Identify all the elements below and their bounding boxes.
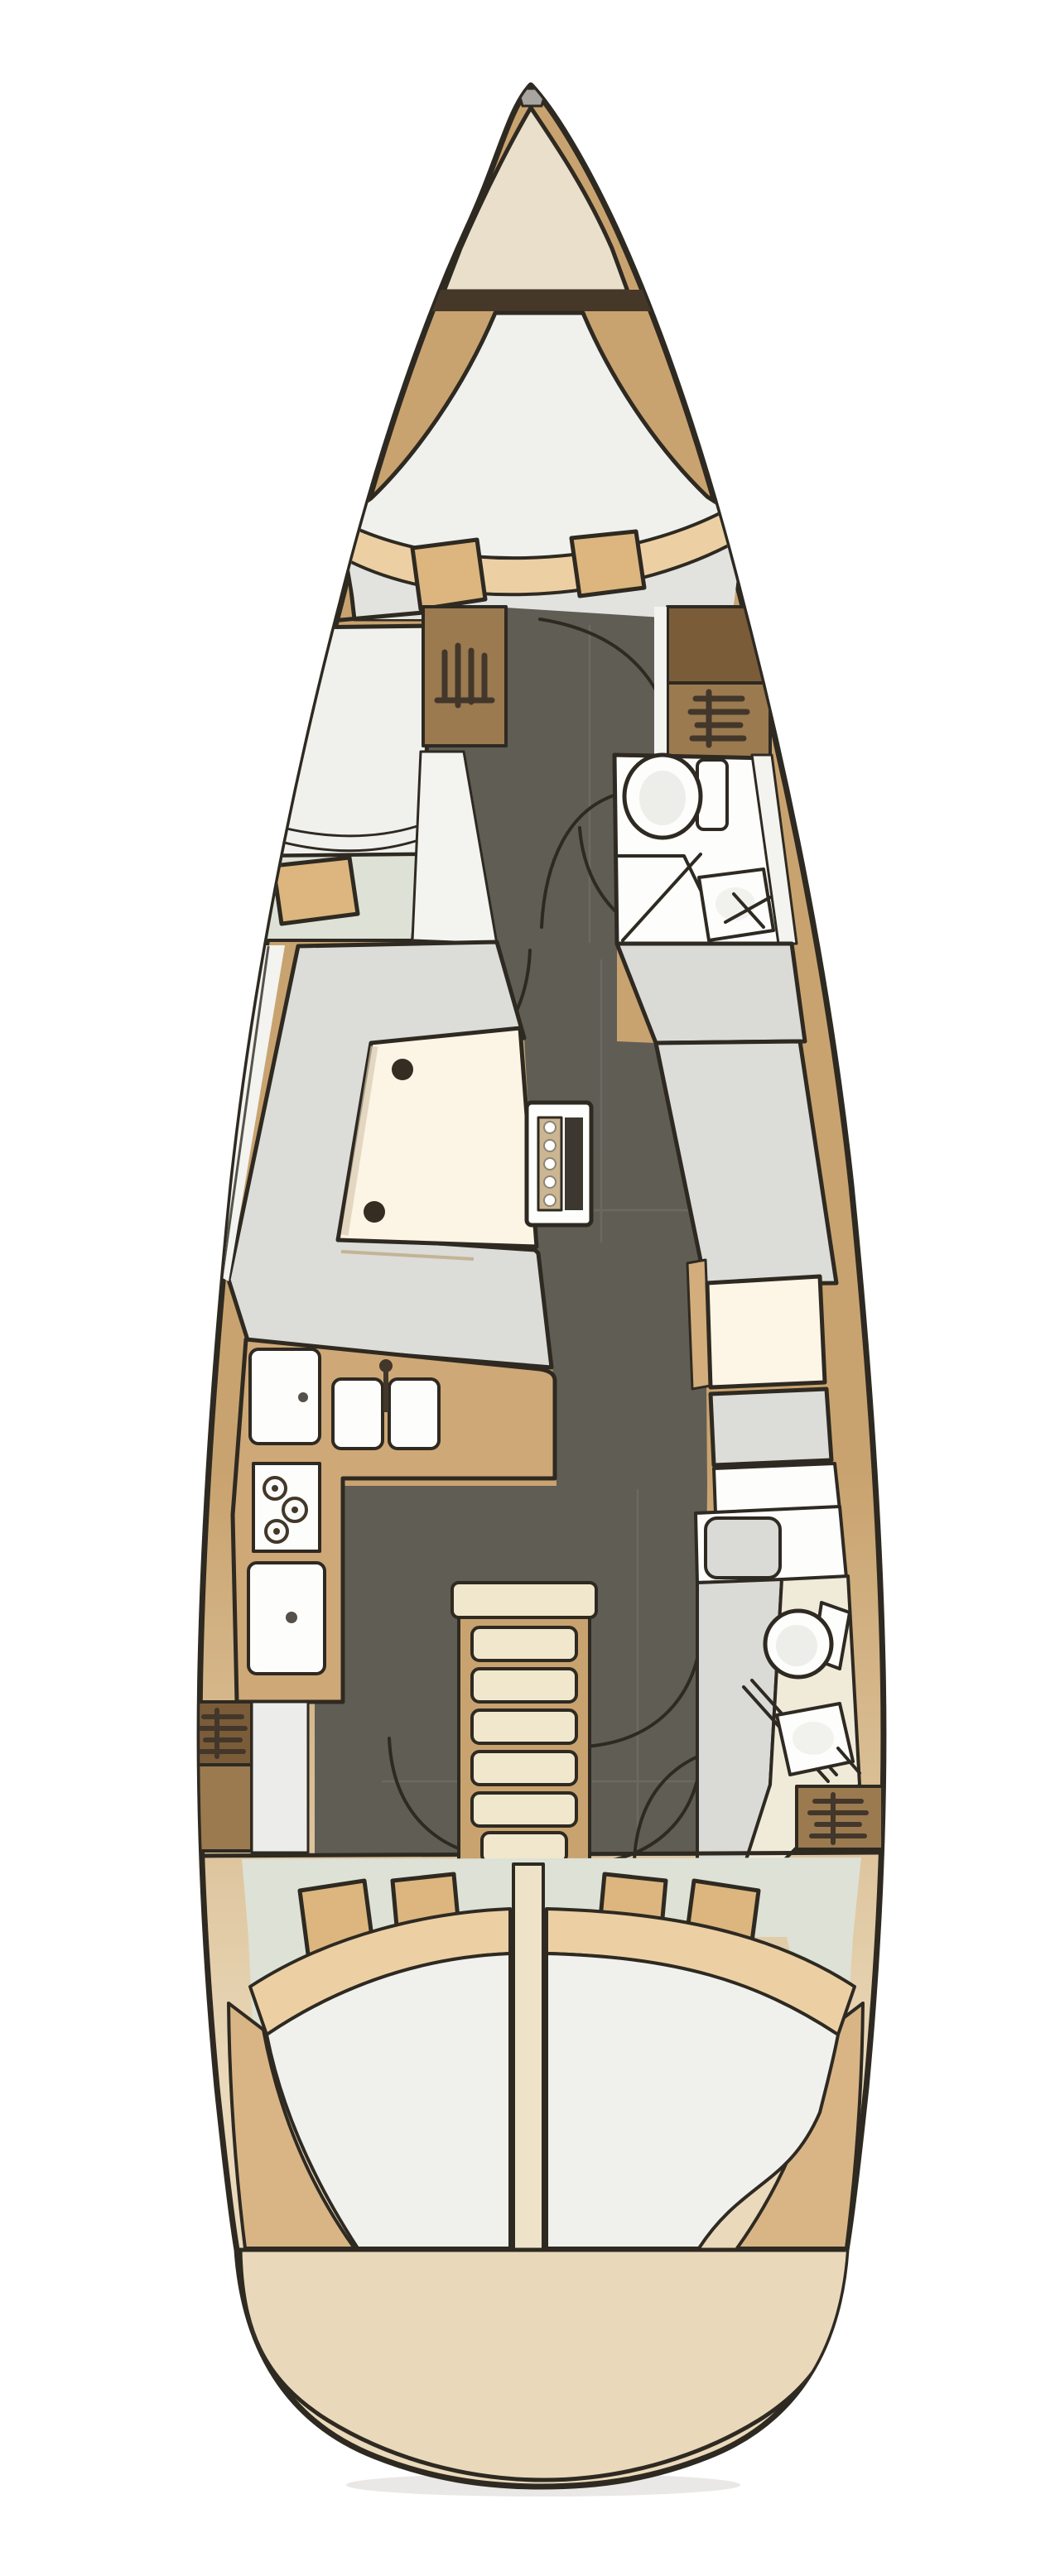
companionway (452, 1583, 596, 1871)
pillow (273, 858, 358, 924)
folding-table (527, 1103, 591, 1225)
wardrobe-forward-port (423, 607, 506, 746)
yacht-floorplan-page (0, 0, 1060, 2576)
aft-locker-starboard (797, 1786, 883, 1849)
companionway-tread (482, 1833, 566, 1862)
pillow (571, 531, 644, 596)
companionway-tread (472, 1627, 576, 1660)
chart-table (707, 1276, 825, 1387)
hanging-locker (797, 1786, 883, 1849)
nav-counter (714, 1463, 840, 1513)
folding-table-leaf (565, 1117, 583, 1210)
basin-bowl (793, 1722, 834, 1755)
faucet-icon (379, 1359, 393, 1372)
companionway-sill (452, 1583, 596, 1617)
pillow (412, 540, 485, 609)
toilet-bowl (776, 1625, 817, 1666)
locker-side-panel (252, 1702, 308, 1853)
aft-locker-port (194, 1702, 308, 1853)
locker-lower (194, 1765, 252, 1851)
centerline-divider (513, 1864, 543, 2250)
dining-table (338, 1028, 537, 1259)
companionway-tread (472, 1710, 576, 1743)
yacht-floorplan (0, 0, 1060, 2576)
companionway-tread (472, 1793, 576, 1826)
table-corner-pad (364, 1201, 385, 1223)
companionway-tread (472, 1669, 576, 1702)
shower-seat (706, 1518, 780, 1578)
galley-sink-bowl (389, 1379, 439, 1449)
fridge (250, 1349, 320, 1444)
anchor-locker (421, 89, 651, 311)
fridge-knob (298, 1392, 308, 1402)
hanging-locker (423, 607, 506, 746)
panel-gap (654, 607, 667, 762)
transom (240, 2250, 850, 2480)
forward-bulkhead (421, 290, 651, 311)
table-corner-pad (392, 1059, 413, 1080)
toilet-bowl (639, 771, 686, 825)
forward-head (614, 755, 805, 1043)
galley-sink-bowl (333, 1379, 383, 1449)
companionway-tread (472, 1752, 576, 1785)
nav-seat (711, 1389, 831, 1465)
hanging-locker (194, 1702, 252, 1765)
wardrobe-forward-starboard (654, 607, 770, 762)
oven-knob (286, 1612, 297, 1623)
